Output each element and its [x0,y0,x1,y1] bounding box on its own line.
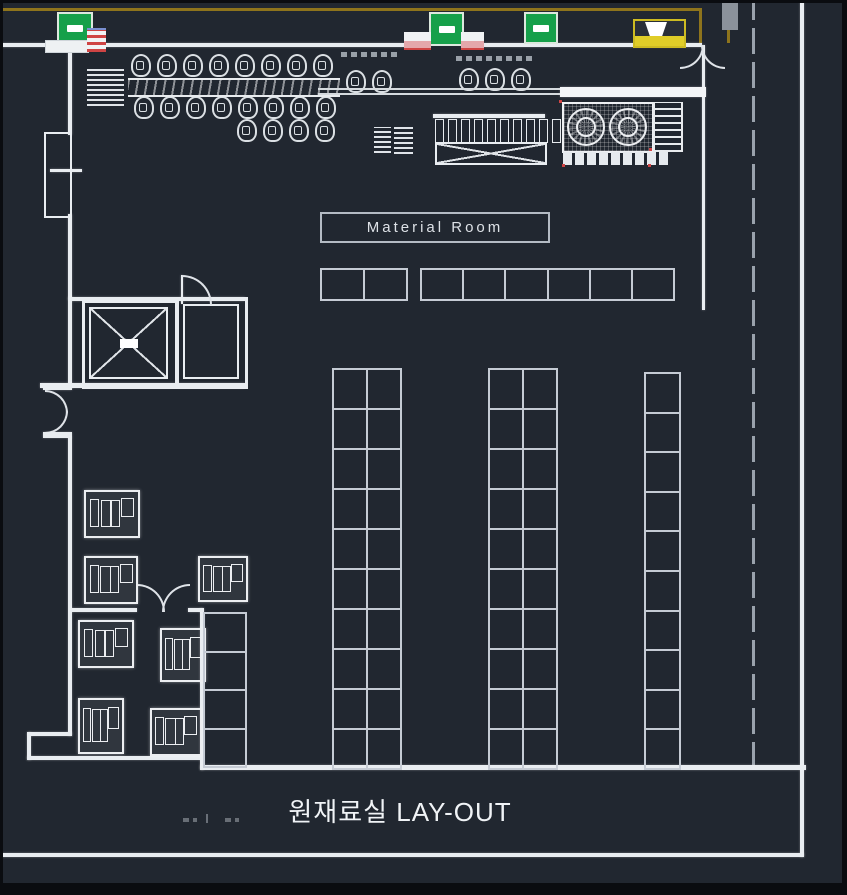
wall-left [68,214,72,300]
workstation-icon [131,54,151,77]
door-swing-icon [182,275,212,305]
machine-icon [84,556,138,604]
wall-top [105,43,405,47]
rack-cell [367,569,401,609]
workstation-icon [186,96,206,119]
wall-niche [44,132,72,218]
rack-cell [523,609,557,649]
rack-cell [333,729,367,769]
workstation-row [131,54,333,77]
machine-foot-icon [659,152,668,165]
wall-right-inner [702,45,705,310]
shelf-icon [374,127,391,153]
door-swing-icon [137,584,165,612]
workstation-icon [313,54,333,77]
storage-bin [590,269,632,300]
rack-cell [489,609,523,649]
rack-cell [367,489,401,529]
rack-cell [333,609,367,649]
small-room-inner [183,304,239,379]
machine-icon [198,556,248,602]
rack-cell [489,689,523,729]
workstation-icon [209,54,229,77]
rack-cell [367,609,401,649]
workstation-icon [315,119,335,142]
storage-bin [505,269,547,300]
rack-cell [367,649,401,689]
machine-core [95,630,115,658]
machine-foot-icon [623,152,632,165]
machine-tooth-icon [474,119,483,143]
workstation-icon [290,96,310,119]
machine-tooth-icon [435,119,444,143]
coil-icon [567,108,605,146]
worktable-icon [128,78,340,97]
machine-core [165,718,183,746]
image-edge [0,883,847,895]
machine-icon [78,698,124,754]
conveyor-line [318,88,560,90]
rack-cell [645,492,680,532]
machine-tooth-icon [526,119,535,143]
machine-teeth-row [435,119,561,143]
conveyor-line [318,93,560,95]
wall-stub [722,0,738,30]
rack-cell [333,529,367,569]
small-annotation-tick [206,814,208,823]
elevator-x [89,307,168,379]
workstation-row [237,119,335,142]
exit-sign-bar [67,25,83,32]
machine-foot-icon [575,152,584,165]
exit-sign-bar [439,26,455,33]
rack-cell [333,409,367,449]
storage-rack [644,372,681,770]
rack-cell [333,689,367,729]
workstation-icon [289,119,309,142]
drawing-border-bottom [0,853,804,857]
room-label-box: Material Room [320,212,550,243]
bin-row [320,268,408,301]
gold-reference-line [699,8,702,46]
crossed-machine-box [435,142,547,165]
storage-bin [364,269,407,300]
gold-reference-line [0,8,702,11]
small-annotation-text [183,818,197,822]
rack-cell [204,690,246,729]
shelf-icon [394,125,413,154]
rack-cell [645,611,680,651]
machine-tooth-icon [513,119,522,143]
plan-title: 원재료실 LAY-OUT [250,792,550,829]
rack-cell [523,729,557,769]
machine-top-bar [433,114,545,118]
rack-cell [204,613,246,652]
machine-icon [150,708,202,756]
small-annotation-text [456,56,534,61]
cad-marker-dot [562,164,565,167]
light-fixture-icon [633,19,686,48]
light-fixture-yellow [635,36,684,46]
wall-left [68,297,72,388]
rack-cell [333,369,367,409]
workstation-icon [316,96,336,119]
rack-cell [489,409,523,449]
storage-bin [321,269,364,300]
rack-cell [523,529,557,569]
rack-cell [523,449,557,489]
machine-foot-icon [611,152,620,165]
door-swing-icon [45,411,68,434]
wall-bottom-left [27,756,203,760]
storage-bin [632,269,674,300]
workstation-icon [160,96,180,119]
rack-cell [367,449,401,489]
rack-cell [333,569,367,609]
rack-cell [523,569,557,609]
floorplan-canvas: Material Room 원재료실 LAY-OUT [0,0,847,895]
elevator-car [120,339,138,348]
rack-cell [523,409,557,449]
room-label: Material Room [367,219,504,236]
rack-cell [645,650,680,690]
rack-cell [645,413,680,453]
side-column-rack [203,612,247,768]
storage-rack [332,368,402,770]
machine-tooth-icon [539,119,548,143]
small-annotation-text [225,818,239,822]
machine-tooth-icon [487,119,496,143]
cad-marker-dot [559,100,562,103]
machine-foot-icon [587,152,596,165]
machine-core [92,709,108,741]
rack-cell [523,649,557,689]
machine-tooth-icon [461,119,470,143]
ladder-rack-icon [653,102,683,152]
storage-bin [463,269,505,300]
rack-cell [645,531,680,571]
machine-core [174,639,190,670]
machine-core [101,500,121,528]
light-fixture-lamp [645,22,667,36]
wall-top [0,43,46,47]
workstation-icon [212,96,232,119]
workstation-icon [183,54,203,77]
rack-cell [489,489,523,529]
machine-icon [160,628,206,682]
machine-core [100,566,119,594]
rack-cell [645,729,680,769]
rack-cell [204,652,246,691]
door-marker [461,32,484,50]
rack-cell [489,569,523,609]
rack-cell [204,729,246,768]
rack-cell [489,449,523,489]
storage-bin [548,269,590,300]
wall-right-dashed [752,0,755,768]
image-edge [0,0,3,895]
rack-cell [367,729,401,769]
rack-cell [489,729,523,769]
workstation-icon [157,54,177,77]
coil-icon [609,108,647,146]
rack-cell [645,571,680,611]
rack-cell [333,649,367,689]
wall-step [28,732,72,736]
door-marker [404,32,431,50]
exit-sign-bar [533,25,549,32]
rack-cell [489,529,523,569]
machine-icon [78,620,134,668]
storage-bin [421,269,463,300]
rack-cell [333,489,367,529]
workstation-icon [235,54,255,77]
machine-icon [84,490,140,538]
rack-cell [367,689,401,729]
rack-cell [367,529,401,569]
bin-row [420,268,675,301]
rack-cell [333,449,367,489]
hatched-machine-icon [562,102,654,153]
workstation-icon [237,119,257,142]
door-marker-striped [87,28,106,52]
wall-left [68,437,72,736]
rack-cell [523,369,557,409]
image-edge [0,0,847,3]
machine-tooth-icon [500,119,509,143]
workstation-icon [261,54,281,77]
rack-cell [645,452,680,492]
exit-sign-icon [524,12,558,44]
rack-cell [523,689,557,729]
rack-cell [523,489,557,529]
door-swing-icon [45,390,68,413]
machine-core [213,566,231,592]
rack-cell [367,369,401,409]
rack-cell [645,373,680,413]
rack-cell [645,690,680,730]
rack-cell [367,409,401,449]
storage-rack [488,368,558,770]
drawing-border-right [800,0,804,857]
cad-marker-dot [649,148,652,151]
machine-feet-row [563,152,668,165]
shelf-icon [87,66,124,106]
machine-foot-icon [635,152,644,165]
workstation-icon [238,96,258,119]
workstation-row [134,96,336,119]
machine-tooth-icon [448,119,457,143]
machine-tooth-icon [552,119,561,143]
door-swing-icon [162,584,190,612]
conveyor-bench [560,87,706,97]
rack-cell [489,369,523,409]
exit-sign-icon [429,12,464,46]
wall-left [68,45,72,135]
cad-marker-dot [648,164,651,167]
small-annotation-text [341,52,397,57]
workstation-icon [134,96,154,119]
workstation-icon [263,119,283,142]
image-edge [842,0,847,895]
workstation-icon [264,96,284,119]
rack-cell [489,649,523,689]
machine-foot-icon [599,152,608,165]
workstation-icon [287,54,307,77]
wall-interior [70,608,137,612]
wall-tick [50,169,82,172]
door-leaf [45,40,89,53]
wall-interior [188,608,203,612]
